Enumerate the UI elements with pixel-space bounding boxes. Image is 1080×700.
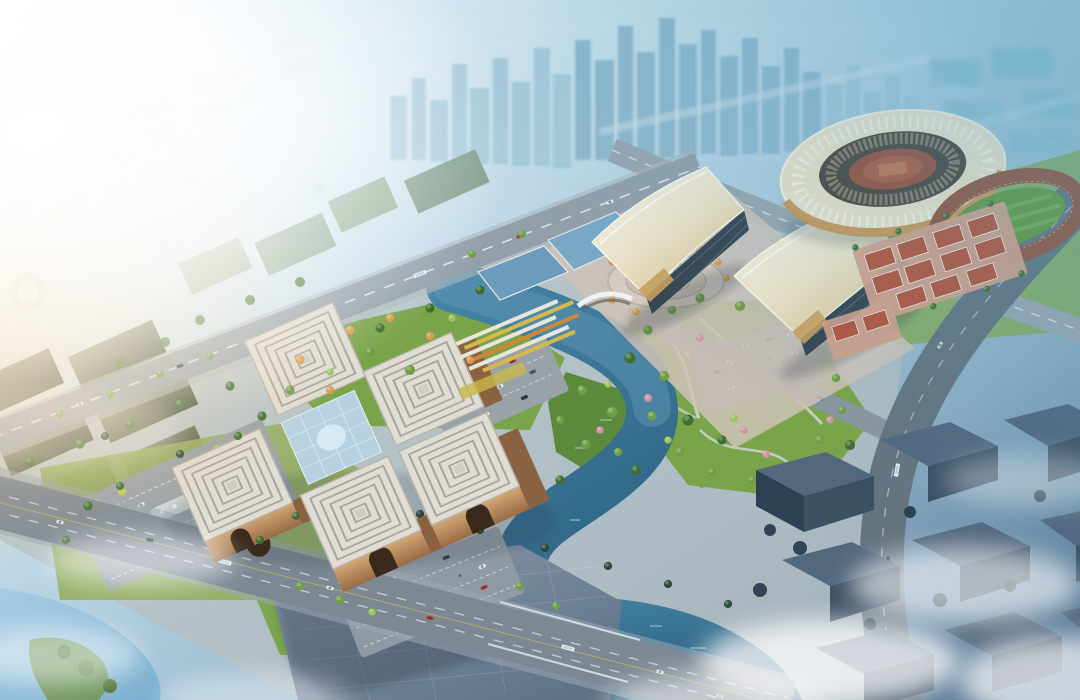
aerial-rendering (0, 0, 1080, 700)
rendering-canvas (0, 0, 1080, 700)
sun-glare (0, 0, 1080, 700)
